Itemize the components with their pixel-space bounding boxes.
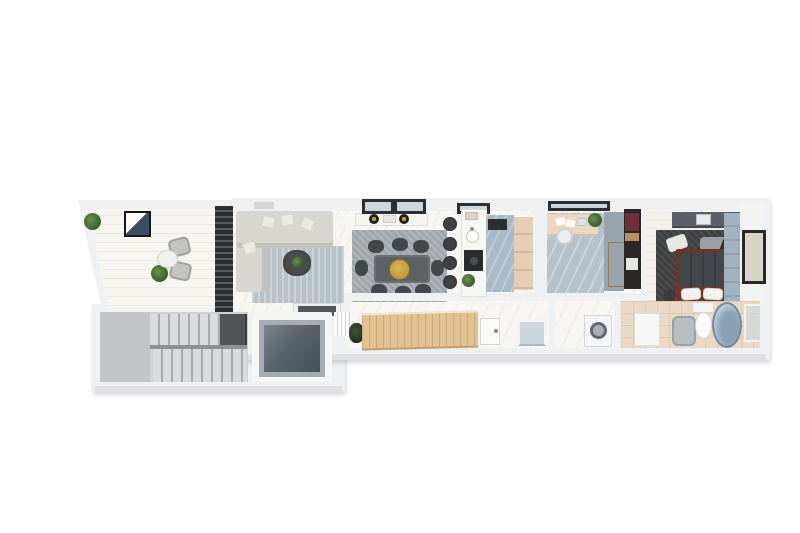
laundry-bath-wall xyxy=(614,301,621,348)
glass-shower-screen xyxy=(744,304,762,342)
washer-door xyxy=(590,322,607,339)
hallway-slatted-wardrobe xyxy=(362,310,478,350)
bathtub xyxy=(712,302,742,348)
dining-chair xyxy=(355,260,368,276)
kitchen-sink xyxy=(466,230,479,243)
bed-blanket xyxy=(680,252,724,287)
closet-clothes xyxy=(625,213,639,231)
closet-clothes xyxy=(625,233,639,241)
hall-laundry-wall xyxy=(549,301,555,348)
dining-chair xyxy=(368,240,384,253)
living-vent-window xyxy=(254,202,274,209)
paneled-accent-wall xyxy=(724,213,740,304)
bed-pillow xyxy=(681,287,702,300)
office-window xyxy=(548,201,610,211)
bar-stool xyxy=(443,217,457,231)
wall-shadow xyxy=(95,386,342,392)
counter-item xyxy=(383,215,396,223)
desk-plant xyxy=(588,213,602,227)
toilet xyxy=(695,312,712,339)
elevator-glass-cabin xyxy=(264,325,320,372)
bed-pillow xyxy=(703,287,724,300)
stair-flight-lower xyxy=(153,349,247,382)
desk-papers xyxy=(565,219,575,227)
cooktop-burner xyxy=(399,214,409,224)
bar-stool xyxy=(443,275,457,289)
floor-plan-canvas xyxy=(0,0,800,533)
counter-plant xyxy=(462,274,475,287)
office-chair xyxy=(556,228,573,245)
bathroom-vanity xyxy=(634,313,660,346)
faucet xyxy=(470,227,474,231)
bar-stool xyxy=(443,256,457,270)
laptop xyxy=(577,218,587,226)
coffee-table-plant xyxy=(292,257,303,268)
balcony-glazed-panel xyxy=(742,230,766,284)
stair-flight-upper xyxy=(150,314,220,345)
entry-storage-bench xyxy=(518,320,546,346)
gold-pendant-lamp xyxy=(389,259,410,280)
stair-landing xyxy=(100,312,150,382)
potted-plant xyxy=(84,213,101,230)
counter-items xyxy=(465,212,478,220)
dining-chair xyxy=(392,238,408,251)
dining-chair xyxy=(413,240,429,253)
cooktop-burner xyxy=(369,214,379,224)
cooktop-ring xyxy=(470,257,478,265)
tall-cabinets xyxy=(514,217,533,290)
sofa-cushion xyxy=(280,213,295,227)
bar-stool xyxy=(443,237,457,251)
wardrobe-tv xyxy=(696,214,711,225)
shower-basin xyxy=(672,316,696,346)
kitchen-appliance xyxy=(488,219,507,230)
slat-partition xyxy=(215,206,233,312)
skylight-window xyxy=(362,199,426,214)
closet-storage-box xyxy=(626,258,638,270)
door-handle xyxy=(494,329,498,333)
terrace-side-table xyxy=(157,250,178,268)
bbq-grill xyxy=(124,211,151,237)
kitchen-office-wall xyxy=(533,211,547,301)
stair-dark-landing xyxy=(220,314,247,345)
